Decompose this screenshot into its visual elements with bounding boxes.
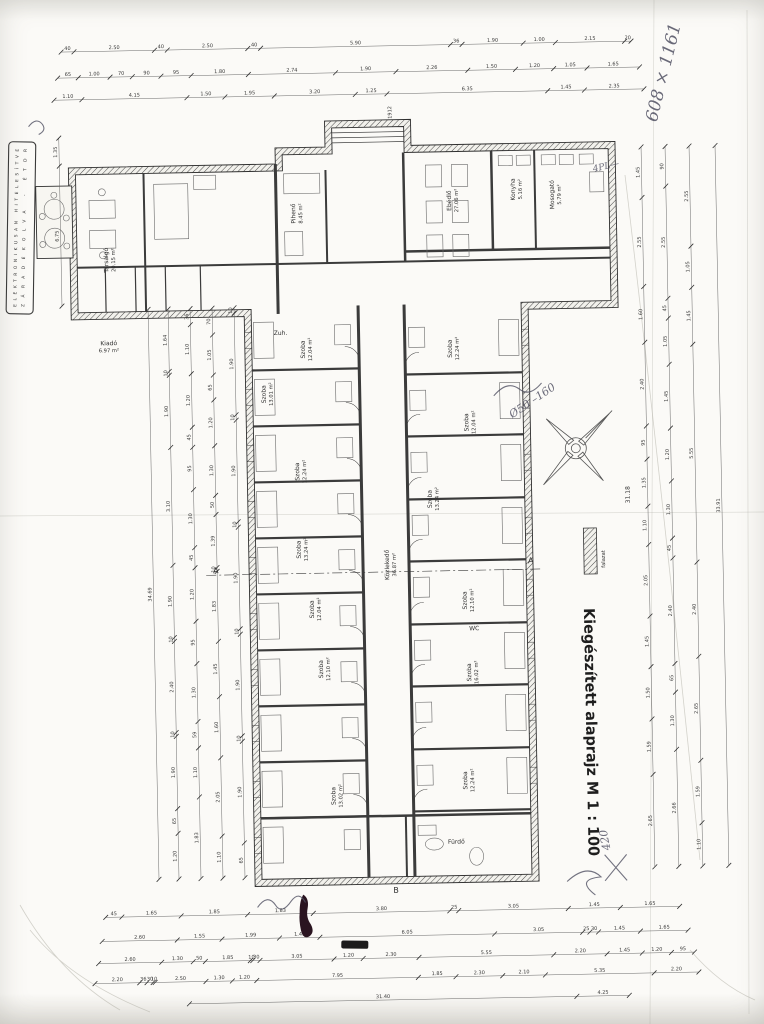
room-label: Társalgó20.15 m² xyxy=(103,247,117,273)
svg-text:12.04 m²: 12.04 m² xyxy=(317,597,323,621)
svg-text:95: 95 xyxy=(680,946,686,952)
svg-text:65: 65 xyxy=(65,72,71,78)
svg-text:12.04 m²: 12.04 m² xyxy=(471,410,477,434)
svg-text:WC: WC xyxy=(469,625,479,632)
svg-text:1.20: 1.20 xyxy=(186,395,192,406)
svg-text:6.75: 6.75 xyxy=(55,231,61,242)
svg-text:1.20: 1.20 xyxy=(172,851,178,862)
svg-text:2.55: 2.55 xyxy=(637,236,643,247)
svg-text:2.40: 2.40 xyxy=(169,681,175,692)
svg-text:1.60: 1.60 xyxy=(638,309,644,320)
svg-text:5.16 m²: 5.16 m² xyxy=(518,179,524,199)
svg-text:Mosogató: Mosogató xyxy=(549,180,557,210)
room-labels: Társalgó20.15 m²Pihenő8.45 m²Ebédlő27.06… xyxy=(96,177,576,852)
svg-text:13.24 m²: 13.24 m² xyxy=(435,487,441,511)
svg-text:1.99: 1.99 xyxy=(245,932,256,938)
svg-text:1.90: 1.90 xyxy=(235,679,241,690)
room-label: Közlekedő36.87 m² xyxy=(384,549,399,580)
svg-text:12.24 m²: 12.24 m² xyxy=(455,337,461,361)
dim-chain: 33.91 xyxy=(709,143,731,868)
drawing-annotation: 1912 xyxy=(387,106,393,119)
svg-text:1.59: 1.59 xyxy=(695,786,701,797)
svg-text:1.45: 1.45 xyxy=(614,925,625,931)
svg-text:1.45: 1.45 xyxy=(589,902,600,908)
svg-text:95: 95 xyxy=(190,639,196,645)
svg-text:1.05: 1.05 xyxy=(565,62,576,68)
svg-text:45: 45 xyxy=(111,911,117,917)
svg-text:1.45: 1.45 xyxy=(635,167,641,178)
svg-text:5.79 m²: 5.79 m² xyxy=(557,184,563,204)
svg-text:1.10: 1.10 xyxy=(62,94,73,100)
svg-text:6.97 m²: 6.97 m² xyxy=(99,348,119,354)
svg-text:1.90: 1.90 xyxy=(168,596,174,607)
room-label: Szoba13.01 m² xyxy=(260,382,274,406)
svg-text:33.91: 33.91 xyxy=(716,498,722,512)
dim-chain: 701.05651.201.30501.39101.831.451.602.05… xyxy=(206,306,225,881)
svg-text:65: 65 xyxy=(669,675,675,681)
svg-text:1.10: 1.10 xyxy=(216,852,222,863)
svg-text:5.55: 5.55 xyxy=(481,950,492,956)
svg-text:2.50: 2.50 xyxy=(175,976,186,982)
svg-text:3.80: 3.80 xyxy=(376,906,387,912)
svg-text:1.83: 1.83 xyxy=(212,601,218,612)
dim-chain: 2.601.551.991.406.053.0525301.451.65 xyxy=(100,924,691,944)
north-arrow-compass xyxy=(542,411,613,485)
stamp-line2: ZÁRADÉKOLVA - ÉTDR xyxy=(18,149,28,307)
svg-text:1.80: 1.80 xyxy=(214,69,225,75)
room-label: Szoba12.24 m² xyxy=(462,768,476,792)
floorplan-drawing: falazat Kiegészített alaprajz M 1 : 100 … xyxy=(0,0,764,1024)
svg-text:1.05: 1.05 xyxy=(207,349,213,360)
svg-text:36: 36 xyxy=(184,313,190,319)
svg-text:1.45: 1.45 xyxy=(664,391,670,402)
svg-text:2.15: 2.15 xyxy=(584,36,595,42)
svg-text:13.02 m²: 13.02 m² xyxy=(338,784,344,808)
svg-text:2.35: 2.35 xyxy=(608,83,619,89)
svg-text:1.90: 1.90 xyxy=(171,767,177,778)
svg-text:2.10: 2.10 xyxy=(518,969,529,975)
svg-text:Zuh.: Zuh. xyxy=(274,330,288,337)
svg-text:1.85: 1.85 xyxy=(432,971,443,977)
svg-text:1.45: 1.45 xyxy=(686,310,692,321)
svg-text:2.20: 2.20 xyxy=(112,977,123,983)
svg-text:50: 50 xyxy=(210,502,216,508)
fold-line-vertical xyxy=(650,0,654,1024)
svg-text:Szoba: Szoba xyxy=(261,385,268,404)
svg-text:6.05: 6.05 xyxy=(402,929,413,935)
svg-text:1.10: 1.10 xyxy=(193,767,199,778)
svg-text:1.20: 1.20 xyxy=(665,449,671,460)
svg-text:1.20: 1.20 xyxy=(208,417,214,428)
svg-text:Szoba: Szoba xyxy=(330,787,337,806)
svg-text:31.40: 31.40 xyxy=(376,994,390,1000)
annex-terrace xyxy=(36,186,73,259)
svg-text:45: 45 xyxy=(189,555,195,561)
svg-text:34.69: 34.69 xyxy=(147,587,153,601)
svg-text:3.05: 3.05 xyxy=(508,903,519,909)
room-label: Szoba12.24 m² xyxy=(294,460,308,484)
svg-text:1.10: 1.10 xyxy=(696,839,702,850)
svg-text:1.65: 1.65 xyxy=(608,61,619,67)
svg-text:13.24 m²: 13.24 m² xyxy=(303,538,309,562)
svg-text:Társalgó: Társalgó xyxy=(103,247,110,273)
svg-text:1.85: 1.85 xyxy=(209,909,220,915)
svg-text:4.25: 4.25 xyxy=(597,990,608,996)
svg-text:2.30: 2.30 xyxy=(385,952,396,958)
svg-text:10: 10 xyxy=(228,307,234,313)
room-label: Szoba12.10 m² xyxy=(461,588,475,612)
svg-text:1.65: 1.65 xyxy=(146,910,157,916)
svg-text:2.40: 2.40 xyxy=(668,605,674,616)
svg-text:1.30: 1.30 xyxy=(666,504,672,515)
svg-text:Szoba: Szoba xyxy=(427,490,434,509)
room-label: Szoba12.10 m² xyxy=(318,657,332,681)
svg-text:1.10: 1.10 xyxy=(185,344,191,355)
fold-line-horizontal xyxy=(0,512,764,516)
svg-text:2.65: 2.65 xyxy=(648,815,654,826)
svg-text:1.90: 1.90 xyxy=(231,465,237,476)
dim-chain: 1.104.151.501.953.201.256.351.452.35 xyxy=(52,83,647,103)
svg-text:1.83: 1.83 xyxy=(194,832,200,843)
dim-chain: 1.452.551.602.40951.351.102.051.451.501.… xyxy=(635,145,657,870)
svg-text:2.60: 2.60 xyxy=(134,935,145,941)
svg-text:1.90: 1.90 xyxy=(237,787,243,798)
svg-text:1.35: 1.35 xyxy=(53,147,59,158)
room-label: Szoba12.04 m² xyxy=(463,410,477,434)
svg-text:Szoba: Szoba xyxy=(462,591,469,610)
svg-text:12.24 m²: 12.24 m² xyxy=(470,768,476,792)
ink-mark xyxy=(341,940,368,948)
svg-text:1.10: 1.10 xyxy=(642,520,648,531)
svg-text:10: 10 xyxy=(234,628,240,634)
svg-text:5.35: 5.35 xyxy=(594,968,605,974)
svg-text:36.87 m²: 36.87 m² xyxy=(392,553,398,577)
svg-text:3.10: 3.10 xyxy=(166,501,172,512)
svg-text:10: 10 xyxy=(232,521,238,527)
svg-text:5.90: 5.90 xyxy=(350,40,361,46)
svg-text:70: 70 xyxy=(206,318,212,324)
svg-text:12.10 m²: 12.10 m² xyxy=(326,657,332,681)
svg-text:1.85: 1.85 xyxy=(222,955,233,961)
drawing-annotation: A xyxy=(213,566,219,575)
svg-text:1.50: 1.50 xyxy=(486,64,497,70)
svg-text:1.45: 1.45 xyxy=(213,663,219,674)
svg-text:3.20: 3.20 xyxy=(309,89,320,95)
svg-text:1.30: 1.30 xyxy=(188,513,194,524)
svg-text:Fürdő: Fürdő xyxy=(448,838,465,845)
room-label: Szoba16.02 m² xyxy=(466,660,480,684)
dim-chain: 651.007090951.802.741.902.261.501.201.05… xyxy=(55,61,642,81)
svg-text:1.50: 1.50 xyxy=(200,91,211,97)
room-label: WC xyxy=(469,625,479,632)
svg-text:6.35: 6.35 xyxy=(462,86,473,92)
room-label: Szoba12.04 m² xyxy=(309,597,323,621)
svg-text:Szoba: Szoba xyxy=(318,660,325,679)
svg-text:1.20: 1.20 xyxy=(189,589,195,600)
pencil-stray-line xyxy=(625,175,700,860)
svg-text:2.26: 2.26 xyxy=(426,65,437,71)
svg-text:1.00: 1.00 xyxy=(534,37,545,43)
stamp-line1: ELEKTRONIKUSAN HITELESÍTVE xyxy=(11,148,20,306)
svg-text:1.45: 1.45 xyxy=(619,947,630,953)
svg-text:65: 65 xyxy=(239,857,245,863)
svg-text:Ebédlő: Ebédlő xyxy=(446,190,453,211)
dimension-chains: 402.50402.50405.90361.901.002.1520651.00… xyxy=(51,34,734,1009)
svg-text:12.04 m²: 12.04 m² xyxy=(308,337,314,361)
svg-text:1.90: 1.90 xyxy=(233,572,239,583)
svg-text:1.30: 1.30 xyxy=(214,975,225,981)
svg-text:20: 20 xyxy=(624,35,630,41)
svg-text:Szoba: Szoba xyxy=(309,600,316,619)
svg-text:Konyha: Konyha xyxy=(510,178,517,201)
dim-chain: 1.64101.903.101.90102.40101.90651.20 xyxy=(162,307,181,882)
svg-text:5.55: 5.55 xyxy=(689,448,695,459)
svg-text:1.65: 1.65 xyxy=(644,901,655,907)
svg-text:2.50: 2.50 xyxy=(202,43,213,49)
svg-text:1.45: 1.45 xyxy=(560,84,571,90)
svg-text:45: 45 xyxy=(186,434,192,440)
svg-text:2.74: 2.74 xyxy=(286,68,297,74)
room-label: Szoba12.24 m² xyxy=(447,337,461,361)
svg-text:59: 59 xyxy=(192,732,198,738)
svg-text:40: 40 xyxy=(64,46,70,52)
svg-text:1.60: 1.60 xyxy=(214,722,220,733)
svg-text:Pihenő: Pihenő xyxy=(290,203,297,224)
handwriting-squiggle-top-left xyxy=(28,121,44,135)
handwritten-note: 420 xyxy=(597,828,614,852)
svg-text:2.20: 2.20 xyxy=(671,966,682,972)
svg-text:45: 45 xyxy=(662,305,668,311)
svg-text:20.15 m²: 20.15 m² xyxy=(111,248,117,272)
svg-text:12.10 m²: 12.10 m² xyxy=(469,588,475,612)
handwritten-note: 608 × 1161 xyxy=(642,21,686,124)
dim-chain: 34.69 xyxy=(142,307,161,882)
svg-text:1.65: 1.65 xyxy=(659,925,670,931)
room-label: Fürdő xyxy=(448,838,465,845)
svg-text:2.55: 2.55 xyxy=(661,237,667,248)
svg-text:2.05: 2.05 xyxy=(643,575,649,586)
svg-text:4.15: 4.15 xyxy=(129,93,140,99)
svg-text:65: 65 xyxy=(172,818,178,824)
svg-text:90: 90 xyxy=(659,163,665,169)
svg-text:Szoba: Szoba xyxy=(463,413,470,432)
generated-partitions xyxy=(244,317,538,863)
room-label: Szoba12.04 m² xyxy=(300,337,314,361)
svg-text:50: 50 xyxy=(196,956,202,962)
drawing-annotation: B xyxy=(393,886,399,895)
svg-text:1.00: 1.00 xyxy=(88,71,99,77)
svg-text:1.50: 1.50 xyxy=(645,687,651,698)
etdr-stamp: ELEKTRONIKUSAN HITELESÍTVE ZÁRADÉKOLVA -… xyxy=(6,142,36,314)
svg-text:10: 10 xyxy=(230,414,236,420)
svg-text:2.50: 2.50 xyxy=(109,45,120,51)
svg-text:36: 36 xyxy=(140,977,146,983)
svg-text:30: 30 xyxy=(591,926,597,932)
building-walls xyxy=(35,115,630,890)
svg-text:2.40: 2.40 xyxy=(639,379,645,390)
svg-text:Kiadó: Kiadó xyxy=(100,340,117,347)
svg-text:40: 40 xyxy=(158,44,164,50)
svg-text:2.40: 2.40 xyxy=(692,604,698,615)
svg-text:90: 90 xyxy=(143,70,149,76)
dim-chain: 2.203630102.501.301.207.951.852.302.105.… xyxy=(92,966,701,986)
svg-text:40: 40 xyxy=(251,42,257,48)
svg-text:1.90: 1.90 xyxy=(229,358,235,369)
svg-text:30: 30 xyxy=(253,954,259,960)
svg-text:12.24 m²: 12.24 m² xyxy=(302,460,308,484)
paper-curl-right xyxy=(690,950,755,1000)
svg-text:1.20: 1.20 xyxy=(343,953,354,959)
svg-text:10: 10 xyxy=(236,735,242,741)
svg-text:1.95: 1.95 xyxy=(244,90,255,96)
svg-text:Szoba: Szoba xyxy=(462,771,469,790)
room-label: Szoba13.24 m² xyxy=(295,538,309,562)
svg-text:1.30: 1.30 xyxy=(172,956,183,962)
svg-text:95: 95 xyxy=(187,465,193,471)
svg-text:1.90: 1.90 xyxy=(164,406,170,417)
svg-text:27.06 m²: 27.06 m² xyxy=(454,189,460,213)
wall-legend: falazat xyxy=(583,528,607,574)
dim-chain: 361.101.2045951.30451.20951.30591.101.83 xyxy=(184,306,203,881)
dim-chain: 451.651.851.833.80253.051.451.65 xyxy=(103,900,682,920)
dim-chain: 402.50402.50405.90361.901.002.1520 xyxy=(59,35,634,54)
svg-text:Szoba: Szoba xyxy=(466,663,473,682)
svg-text:3.05: 3.05 xyxy=(533,927,544,933)
svg-text:2.66: 2.66 xyxy=(672,802,678,813)
svg-text:2.20: 2.20 xyxy=(575,948,586,954)
dim-chain: 2.551.051.455.552.402.651.591.10 xyxy=(683,144,705,869)
room-label: Mosogató5.79 m² xyxy=(549,180,564,210)
svg-text:95: 95 xyxy=(173,70,179,76)
svg-text:13.01 m²: 13.01 m² xyxy=(268,382,274,406)
svg-text:1.90: 1.90 xyxy=(360,66,371,72)
svg-text:2.05: 2.05 xyxy=(215,791,221,802)
svg-text:1.30: 1.30 xyxy=(209,465,215,476)
svg-text:2.30: 2.30 xyxy=(474,970,485,976)
svg-text:65: 65 xyxy=(208,384,214,390)
svg-text:2.55: 2.55 xyxy=(684,191,690,202)
drawing-annotation: A xyxy=(528,556,534,565)
svg-text:1.05: 1.05 xyxy=(663,336,669,347)
svg-text:1.39: 1.39 xyxy=(210,535,216,546)
svg-text:1.20: 1.20 xyxy=(529,63,540,69)
sheet-title: Kiegészített alaprajz M 1 : 100 xyxy=(580,608,603,856)
svg-text:1.90: 1.90 xyxy=(487,38,498,44)
svg-text:3.05: 3.05 xyxy=(291,954,302,960)
svg-text:8.45 m²: 8.45 m² xyxy=(298,203,304,223)
svg-text:Szoba: Szoba xyxy=(294,462,301,481)
svg-text:1.45: 1.45 xyxy=(644,636,650,647)
svg-text:16.02 m²: 16.02 m² xyxy=(474,660,480,684)
svg-text:1.55: 1.55 xyxy=(194,933,205,939)
svg-text:1.20: 1.20 xyxy=(239,975,250,981)
room-label: Pihenő8.45 m² xyxy=(290,203,304,224)
dim-chain: 101.90101.90101.90101.90101.9065 xyxy=(228,305,247,880)
svg-text:1.64: 1.64 xyxy=(163,335,169,346)
svg-text:1.05: 1.05 xyxy=(685,261,691,272)
svg-text:7.95: 7.95 xyxy=(332,973,343,979)
dim-chain: 31.404.25 xyxy=(187,989,632,1006)
dim-chain: 2.601.30501.8510303.051.202.305.552.201.… xyxy=(96,946,697,966)
room-label: Zuh. xyxy=(274,330,288,337)
svg-text:Szoba: Szoba xyxy=(447,339,454,358)
drawing-annotation: 31.18 xyxy=(625,486,632,503)
svg-text:1.30: 1.30 xyxy=(191,687,197,698)
svg-text:1.35: 1.35 xyxy=(641,477,647,488)
svg-text:2.65: 2.65 xyxy=(694,703,700,714)
svg-text:25: 25 xyxy=(583,926,589,932)
svg-text:95: 95 xyxy=(641,439,647,445)
svg-text:1.25: 1.25 xyxy=(365,88,376,94)
svg-text:1.20: 1.20 xyxy=(651,947,662,953)
handwriting-squiggle-bottom-right xyxy=(567,854,628,895)
svg-text:70: 70 xyxy=(118,71,124,77)
room-label: Szoba13.02 m² xyxy=(330,784,344,808)
scanned-floorplan-page: { "document": { "title": "Kiegészített a… xyxy=(0,0,764,1024)
room-label: Konyha5.16 m² xyxy=(510,178,524,201)
legend-label: falazat xyxy=(601,550,607,568)
svg-text:Szoba: Szoba xyxy=(296,540,303,559)
svg-text:Szoba: Szoba xyxy=(300,340,307,359)
room-label: Kiadó6.97 m² xyxy=(98,340,119,354)
svg-text:2.60: 2.60 xyxy=(124,957,135,963)
svg-text:36: 36 xyxy=(453,38,459,44)
svg-text:1.30: 1.30 xyxy=(670,715,676,726)
svg-text:25: 25 xyxy=(451,905,457,911)
svg-text:1.59: 1.59 xyxy=(646,741,652,752)
svg-text:45: 45 xyxy=(667,545,673,551)
svg-text:Közlekedő: Közlekedő xyxy=(384,549,392,580)
